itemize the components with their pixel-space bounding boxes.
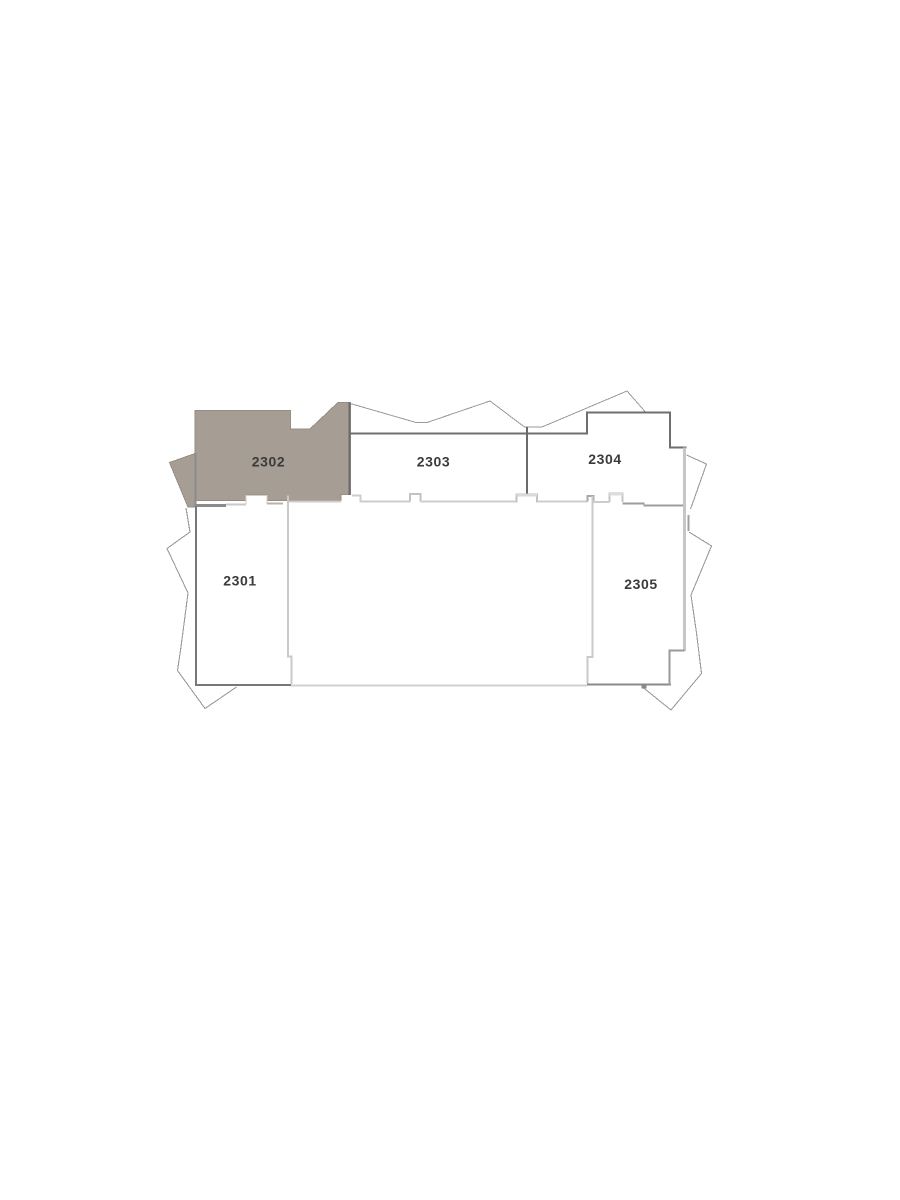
svg-text:2303: 2303 bbox=[417, 454, 451, 470]
svg-text:2302: 2302 bbox=[252, 454, 286, 470]
svg-text:2304: 2304 bbox=[588, 451, 622, 467]
svg-text:2301: 2301 bbox=[223, 573, 257, 589]
svg-text:2305: 2305 bbox=[624, 576, 658, 592]
